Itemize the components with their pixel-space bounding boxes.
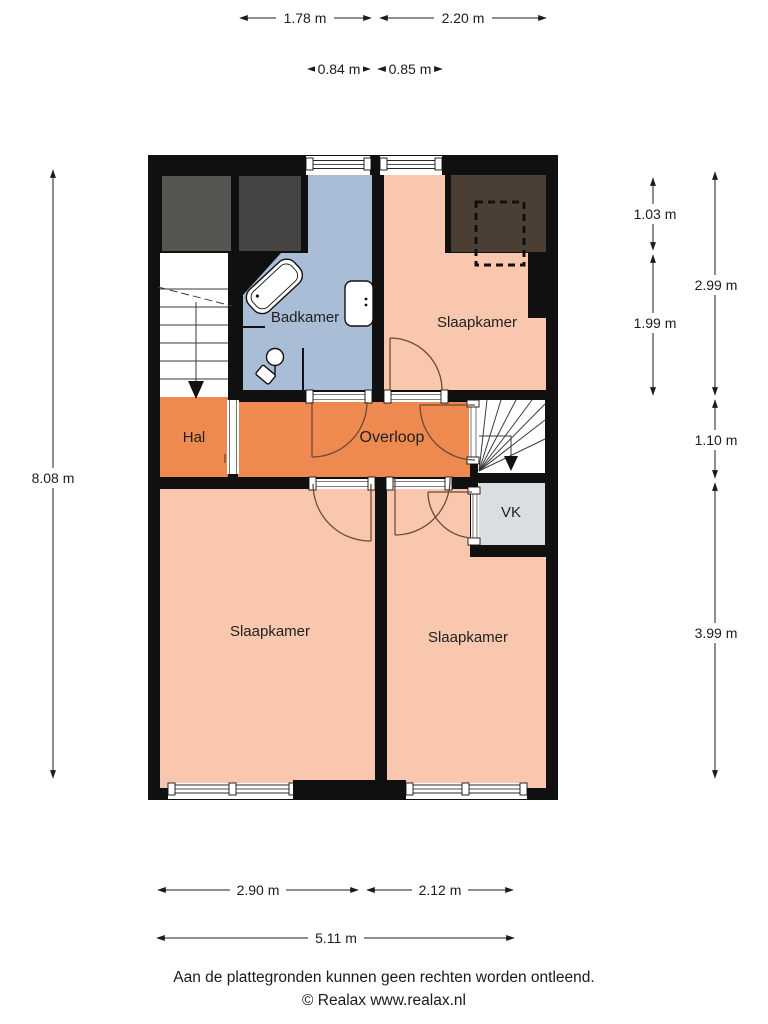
label-vk: VK	[501, 504, 521, 521]
footer-credit: © Realax www.realax.nl	[0, 989, 768, 1012]
svg-text:1.78 m: 1.78 m	[284, 10, 327, 26]
attic-panel-right	[451, 175, 546, 252]
svg-text:1.03 m: 1.03 m	[634, 206, 677, 222]
dim-left-total: 8.08 m	[25, 170, 81, 778]
svg-text:1.10 m: 1.10 m	[695, 432, 738, 448]
label-overloop: Overloop	[360, 429, 425, 446]
label-hal: Hal	[183, 429, 206, 446]
dim-bottom-total: 5.11 m	[157, 928, 514, 948]
dim-right-inner-1: 1.03 m	[627, 178, 683, 250]
label-badkamer: Badkamer	[271, 309, 339, 326]
floor-plan-canvas: Badkamer Slaapkamer Hal Overloop VK Slaa…	[0, 0, 768, 1024]
label-slaapkamer-left: Slaapkamer	[230, 623, 310, 640]
window-top-badkamer	[306, 156, 371, 175]
bottom-wall-block	[293, 780, 406, 800]
svg-text:0.85 m: 0.85 m	[389, 61, 432, 77]
footer-disclaimer: Aan de plattegronden kunnen geen rechten…	[0, 966, 768, 989]
footer: Aan de plattegronden kunnen geen rechten…	[0, 966, 768, 1012]
dim-bottom-1: 2.90 m	[158, 880, 358, 900]
svg-text:0.84 m: 0.84 m	[318, 61, 361, 77]
dim-top-2: 2.20 m	[380, 8, 546, 28]
room-overloop	[238, 402, 470, 477]
attic-panel-left-1	[162, 176, 231, 251]
dim-right-outer-1: 2.99 m	[688, 172, 744, 395]
floor-plan: Badkamer Slaapkamer Hal Overloop VK Slaa…	[148, 155, 558, 800]
sink	[345, 281, 373, 326]
svg-text:1.99 m: 1.99 m	[634, 315, 677, 331]
svg-text:3.99 m: 3.99 m	[695, 625, 738, 641]
label-slaapkamer-right: Slaapkamer	[428, 629, 508, 646]
window-bottom-left	[168, 783, 296, 799]
svg-text:8.08 m: 8.08 m	[32, 470, 75, 486]
svg-text:2.99 m: 2.99 m	[695, 277, 738, 293]
svg-text:2.12 m: 2.12 m	[419, 882, 462, 898]
dim-bottom-2: 2.12 m	[367, 880, 513, 900]
svg-text:2.20 m: 2.20 m	[442, 10, 485, 26]
dim-right-outer-3: 3.99 m	[688, 483, 744, 778]
dim-top-inner-1: 0.84 m	[308, 59, 370, 79]
dim-top-1: 1.78 m	[240, 8, 371, 28]
dim-top-inner-2: 0.85 m	[378, 59, 442, 79]
dim-right-inner-2: 1.99 m	[627, 255, 683, 395]
attic-panel-left-2	[239, 176, 301, 251]
label-slaapkamer-top: Slaapkamer	[437, 314, 517, 331]
opening-hal-overloop	[227, 400, 239, 474]
window-top-slaapkamer	[380, 156, 442, 175]
dim-right-outer-2: 1.10 m	[688, 400, 744, 478]
svg-text:2.90 m: 2.90 m	[237, 882, 280, 898]
svg-text:5.11 m: 5.11 m	[315, 930, 357, 946]
window-bottom-right	[406, 783, 527, 799]
